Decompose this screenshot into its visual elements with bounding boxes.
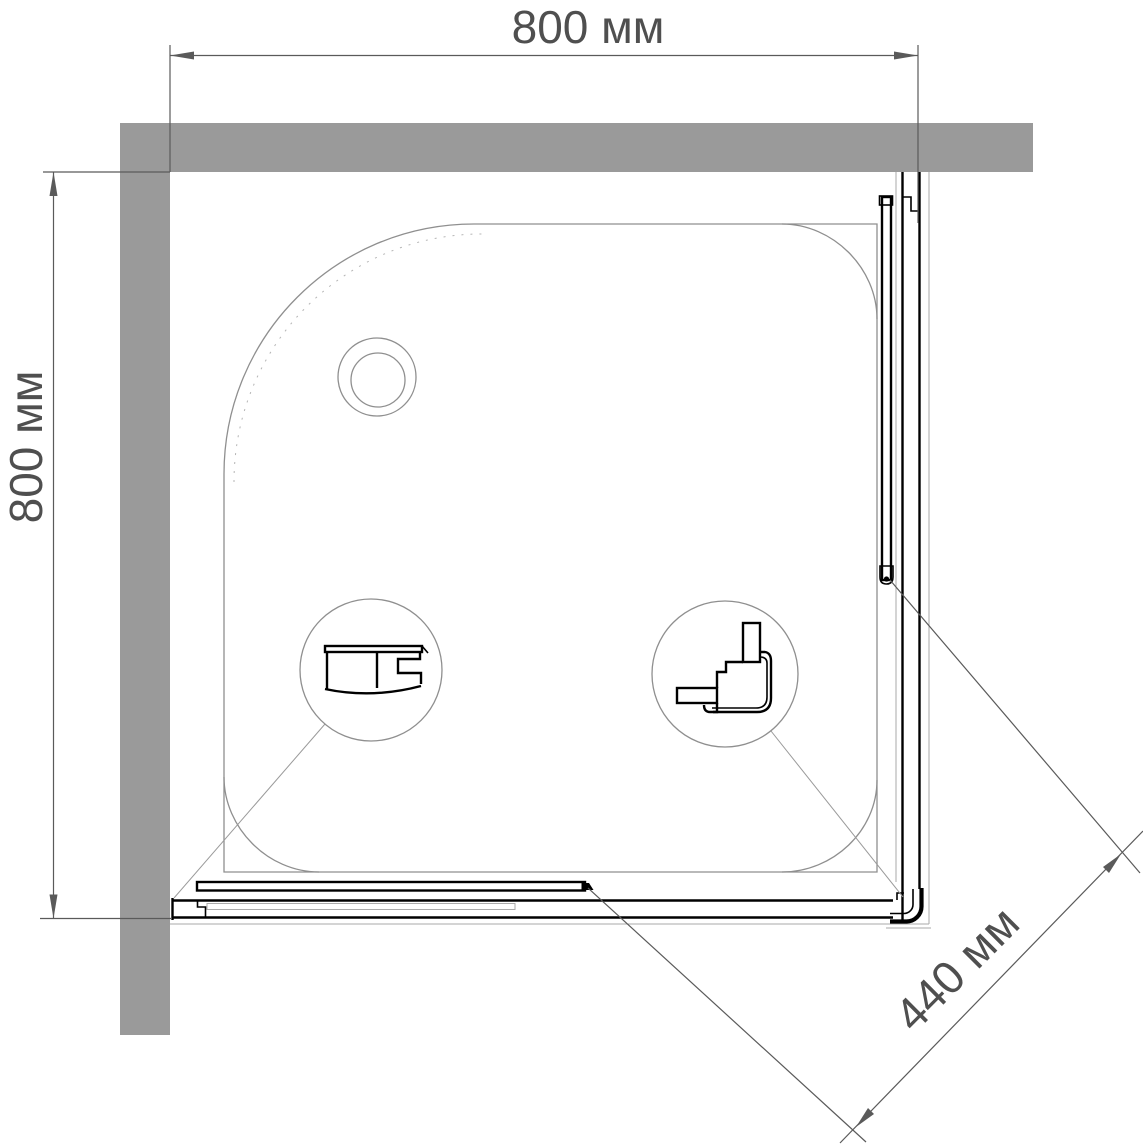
detail-circle-corner-profile <box>652 601 798 747</box>
top-dim-arrow-right <box>894 52 918 60</box>
dimension-top: 800 мм <box>170 1 918 223</box>
detail-circle-rail-profile <box>300 599 442 741</box>
top-wall <box>120 123 1033 172</box>
right-door-assembly <box>880 172 930 924</box>
tray-corner-arc-bottom-right <box>782 780 877 872</box>
right-sliding-door-panel <box>882 197 891 580</box>
diag-dim-witness-upper <box>890 580 1140 873</box>
bottom-door-end-cap <box>582 883 594 890</box>
diag-dim-witness-lower <box>588 888 866 1142</box>
technical-drawing-page: 800 мм 800 мм 440 мм <box>0 0 1143 1145</box>
left-dim-arrow-bottom <box>50 895 58 919</box>
drain-icon <box>338 338 416 416</box>
shower-tray-outline <box>224 224 877 872</box>
top-dim-label: 800 мм <box>512 1 665 53</box>
tray-inner-dashed-arc <box>234 234 482 482</box>
bottom-rail-bracket <box>198 901 206 917</box>
bottom-door-assembly <box>170 882 929 924</box>
shower-enclosure-plan-svg: 800 мм 800 мм 440 мм <box>0 0 1143 1145</box>
left-dim-label: 800 мм <box>0 371 52 524</box>
left-wall <box>120 123 170 1035</box>
diag-dim-line <box>840 831 1143 1143</box>
tray-corner-arc-top-right <box>782 224 877 319</box>
bottom-fixed-panel <box>207 904 515 910</box>
top-dim-arrow-left <box>170 52 194 60</box>
right-door-roller-pin <box>884 576 889 581</box>
corner-connector-outer <box>890 888 922 922</box>
corner-connector <box>886 888 931 928</box>
right-wall-profile-bracket <box>903 197 919 211</box>
bottom-sliding-door-panel <box>197 882 585 891</box>
diag-dim-label: 440 мм <box>884 896 1029 1041</box>
left-dim-arrow-top <box>50 172 58 196</box>
